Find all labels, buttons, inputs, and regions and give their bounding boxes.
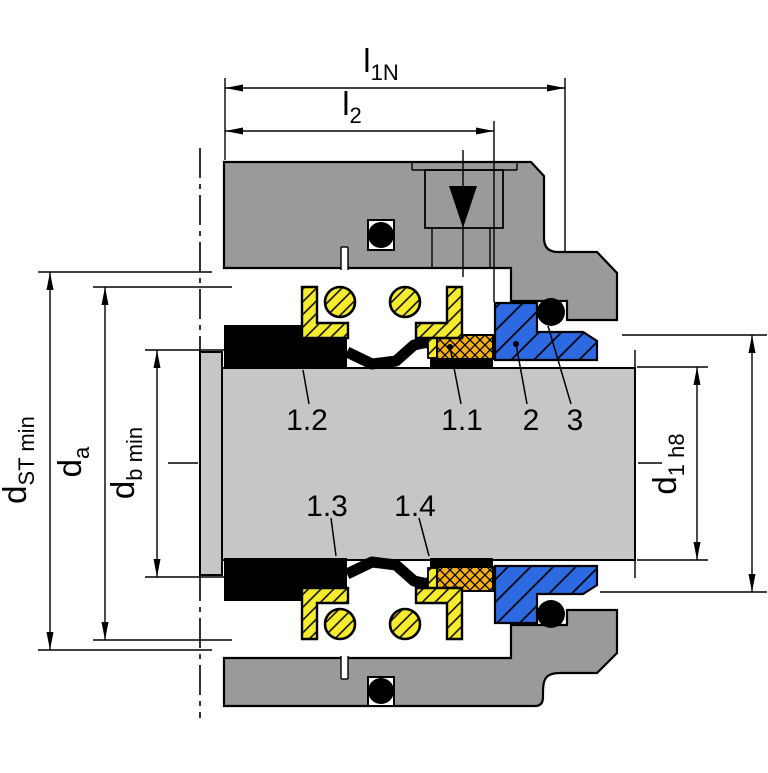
housing-bottom-slot bbox=[341, 654, 348, 679]
housing-top-slot bbox=[341, 247, 348, 272]
part-label-3: 3 bbox=[567, 404, 584, 437]
mechanical-seal-drawing: l1N l2 dST min da db min d1 h8 bbox=[0, 0, 768, 768]
seat-o-ring-top bbox=[537, 298, 565, 326]
part-label-1-4: 1.4 bbox=[394, 490, 436, 523]
seat-o-ring-bottom bbox=[537, 600, 565, 628]
shaft-shoulder bbox=[200, 352, 222, 575]
part-label-2: 2 bbox=[523, 404, 540, 437]
part-label-1-3: 1.3 bbox=[306, 490, 348, 523]
seal-cross-section-svg: l1N l2 dST min da db min d1 h8 bbox=[0, 0, 768, 768]
shaft-body bbox=[222, 368, 635, 560]
shaft bbox=[200, 350, 635, 578]
part-label-1-2: 1.2 bbox=[286, 404, 328, 437]
gasket-o-ring-bottom bbox=[368, 678, 394, 704]
gasket-o-ring-top bbox=[368, 222, 394, 248]
part-label-1-1: 1.1 bbox=[441, 404, 483, 437]
